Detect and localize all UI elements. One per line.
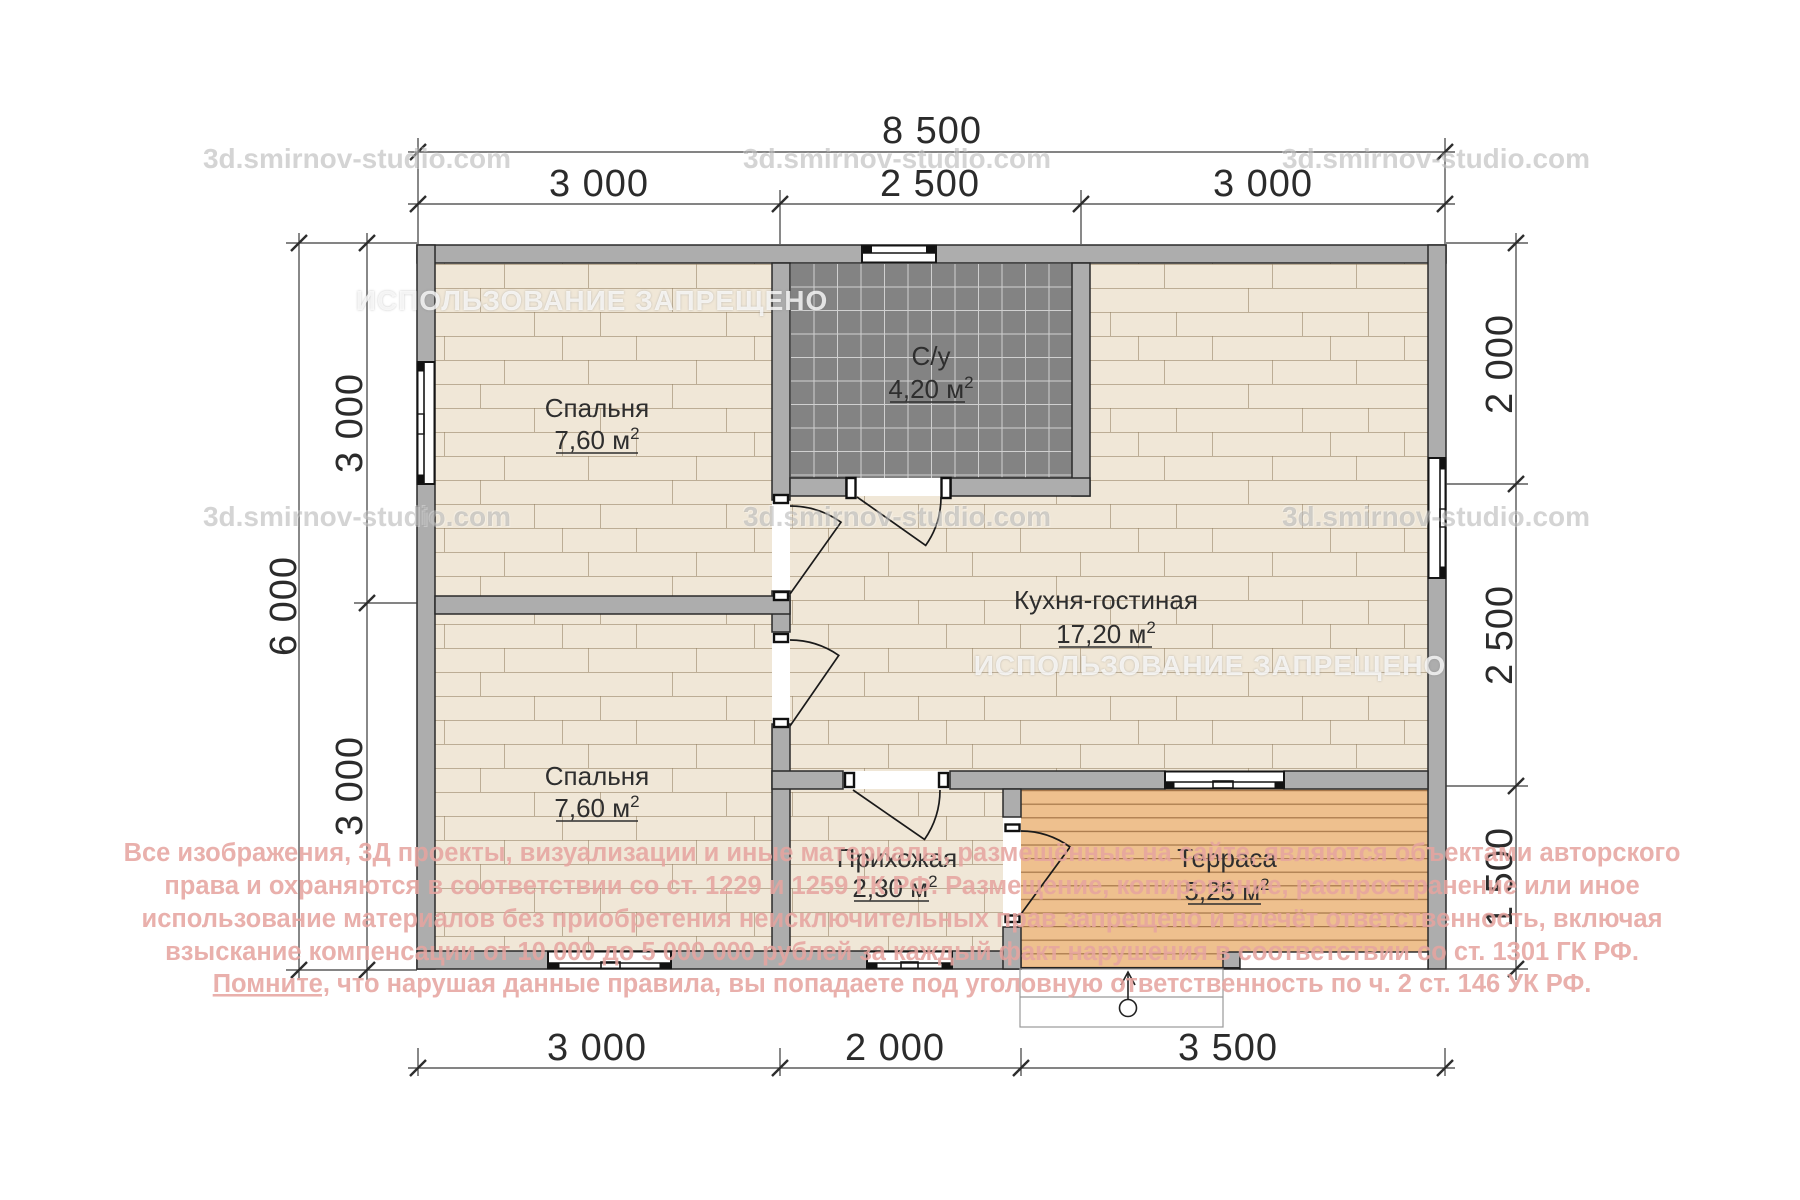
svg-text:3 000: 3 000 (329, 373, 371, 473)
svg-text:3d.smirnov-studio.com: 3d.smirnov-studio.com (1282, 501, 1590, 532)
svg-text:права и охраняются в соответст: права и охраняются в соответствии со ст.… (164, 872, 1639, 900)
svg-text:3 500: 3 500 (1178, 1027, 1278, 1069)
svg-text:Спальня: Спальня (545, 761, 649, 791)
svg-text:3 000: 3 000 (329, 736, 371, 836)
svg-text:2 500: 2 500 (1479, 585, 1521, 685)
svg-text:3d.smirnov-studio.com: 3d.smirnov-studio.com (203, 501, 511, 532)
svg-text:взыскание компенсации от 10 00: взыскание компенсации от 10 000 до 5 000… (165, 938, 1639, 966)
svg-text:3 000: 3 000 (549, 163, 649, 205)
svg-text:ИСПОЛЬЗОВАНИЕ ЗАПРЕЩЕНО: ИСПОЛЬЗОВАНИЕ ЗАПРЕЩЕНО (974, 650, 1447, 681)
svg-text:17,20 м2: 17,20 м2 (1056, 618, 1156, 649)
svg-text:Помните, что нарушая данные пр: Помните, что нарушая данные правила, вы … (213, 970, 1592, 998)
svg-text:Спальня: Спальня (545, 393, 649, 423)
svg-text:Все изображения, 3Д проекты, в: Все изображения, 3Д проекты, визуализаци… (124, 839, 1681, 867)
svg-text:4,20 м2: 4,20 м2 (888, 373, 973, 404)
svg-text:6 000: 6 000 (263, 556, 305, 656)
svg-text:С/у: С/у (912, 341, 951, 371)
svg-text:3d.smirnov-studio.com: 3d.smirnov-studio.com (1282, 143, 1590, 174)
svg-text:3d.smirnov-studio.com: 3d.smirnov-studio.com (743, 143, 1051, 174)
svg-text:7,60 м2: 7,60 м2 (554, 424, 639, 455)
svg-text:7,60 м2: 7,60 м2 (554, 792, 639, 823)
svg-text:2 000: 2 000 (1479, 314, 1521, 414)
svg-text:3d.smirnov-studio.com: 3d.smirnov-studio.com (203, 143, 511, 174)
svg-text:2 000: 2 000 (845, 1027, 945, 1069)
svg-text:3 000: 3 000 (547, 1027, 647, 1069)
svg-text:использование материалов без п: использование материалов без приобретени… (142, 905, 1663, 933)
svg-text:ИСПОЛЬЗОВАНИЕ ЗАПРЕЩЕНО: ИСПОЛЬЗОВАНИЕ ЗАПРЕЩЕНО (356, 285, 829, 316)
svg-text:Кухня-гостиная: Кухня-гостиная (1014, 585, 1198, 615)
svg-text:3d.smirnov-studio.com: 3d.smirnov-studio.com (743, 501, 1051, 532)
